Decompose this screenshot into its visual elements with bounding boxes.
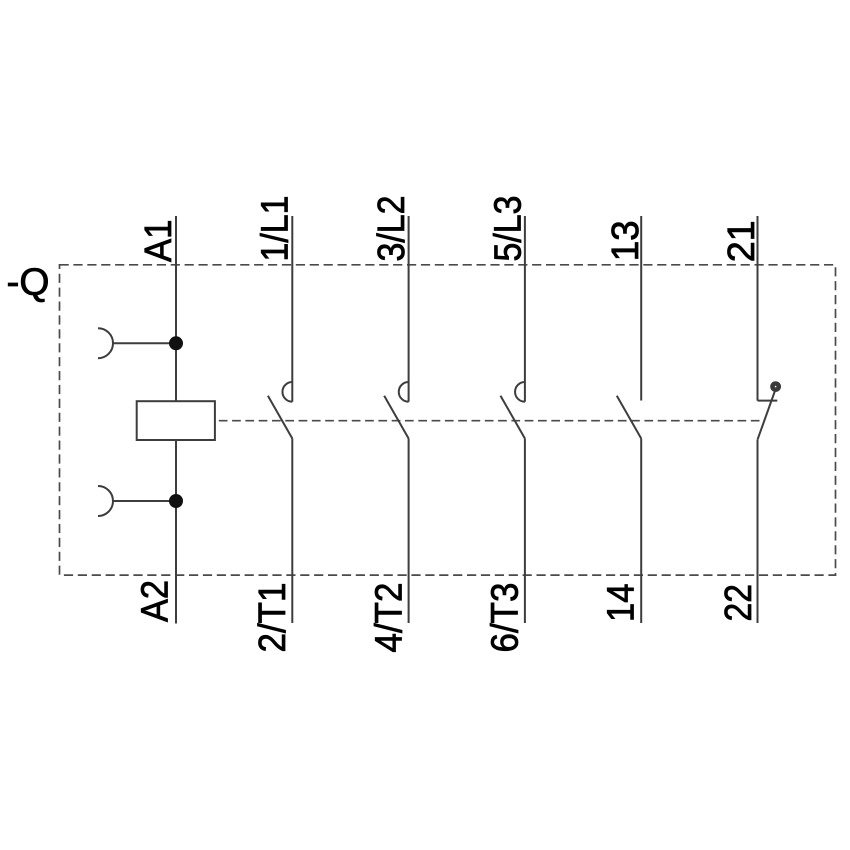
svg-text:A2: A2 <box>135 580 177 622</box>
svg-text:14: 14 <box>601 584 643 623</box>
svg-text:5/L3: 5/L3 <box>487 196 529 262</box>
svg-text:-Q: -Q <box>7 262 50 304</box>
svg-text:22: 22 <box>718 584 760 622</box>
svg-text:4/T2: 4/T2 <box>368 583 410 653</box>
svg-text:2/T1: 2/T1 <box>252 583 294 653</box>
svg-text:1/L1: 1/L1 <box>255 196 297 262</box>
svg-text:3/L2: 3/L2 <box>371 196 413 262</box>
svg-text:13: 13 <box>605 220 647 261</box>
svg-text:6/T3: 6/T3 <box>485 583 527 653</box>
svg-text:A1: A1 <box>138 220 180 263</box>
svg-text:21: 21 <box>721 220 763 262</box>
